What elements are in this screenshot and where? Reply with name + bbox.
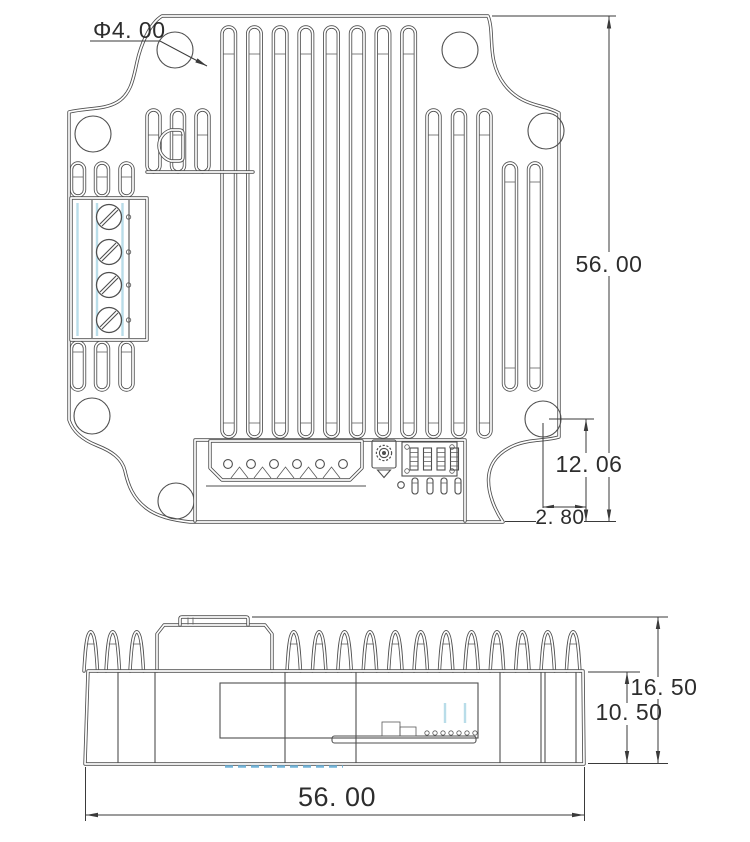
- side-recess-panel: [220, 683, 478, 738]
- dim-body-width: 56. 00: [298, 782, 376, 812]
- dimension-annotations: Φ4. 00 56. 00 12. 06 2. 80 16. 50 10. 50…: [86, 16, 698, 821]
- dim-hole-diameter: Φ4. 00: [93, 17, 166, 43]
- side-body: [85, 671, 584, 767]
- hole-diameter-leader: [90, 41, 207, 66]
- terminal-block: [71, 198, 147, 340]
- mounting-hole: [75, 116, 111, 152]
- drawing-svg: Φ4. 00 56. 00 12. 06 2. 80 16. 50 10. 50…: [0, 0, 750, 842]
- dim-overall-height: 16. 50: [631, 674, 698, 700]
- heatsink-fins-center: [222, 27, 415, 437]
- side-view: [84, 617, 584, 767]
- top-view: [69, 16, 564, 522]
- connector-6pin: [206, 441, 366, 486]
- dim-hole-to-edge: 2. 80: [535, 506, 584, 529]
- dim-base-height: 10. 50: [596, 699, 663, 725]
- mounting-hole: [74, 398, 110, 434]
- dip-switch: [402, 442, 461, 494]
- side-component: [382, 722, 400, 736]
- heatsink-fins-right: [427, 110, 542, 437]
- technical-drawing-canvas: Φ4. 00 56. 00 12. 06 2. 80 16. 50 10. 50…: [0, 0, 750, 842]
- pcb-hole: [398, 482, 405, 489]
- terminal-screw: [97, 273, 122, 298]
- dip-switch-actuators: [410, 448, 459, 470]
- side-terminal-block: [157, 617, 272, 671]
- dip-switch-pins: [412, 478, 461, 494]
- dim-body-height: 56. 00: [576, 251, 643, 277]
- potentiometer: [372, 440, 396, 478]
- side-pcb-pins: [425, 731, 477, 735]
- mounting-hole: [158, 483, 194, 519]
- terminal-screw: [97, 240, 122, 265]
- side-component: [400, 727, 416, 736]
- side-slot: [332, 736, 476, 743]
- terminal-screw: [97, 308, 122, 333]
- fin-ticks: [73, 54, 540, 423]
- terminal-screw: [97, 205, 122, 230]
- dim-hole-to-bottom: 12. 06: [556, 451, 623, 477]
- mounting-hole: [442, 32, 478, 68]
